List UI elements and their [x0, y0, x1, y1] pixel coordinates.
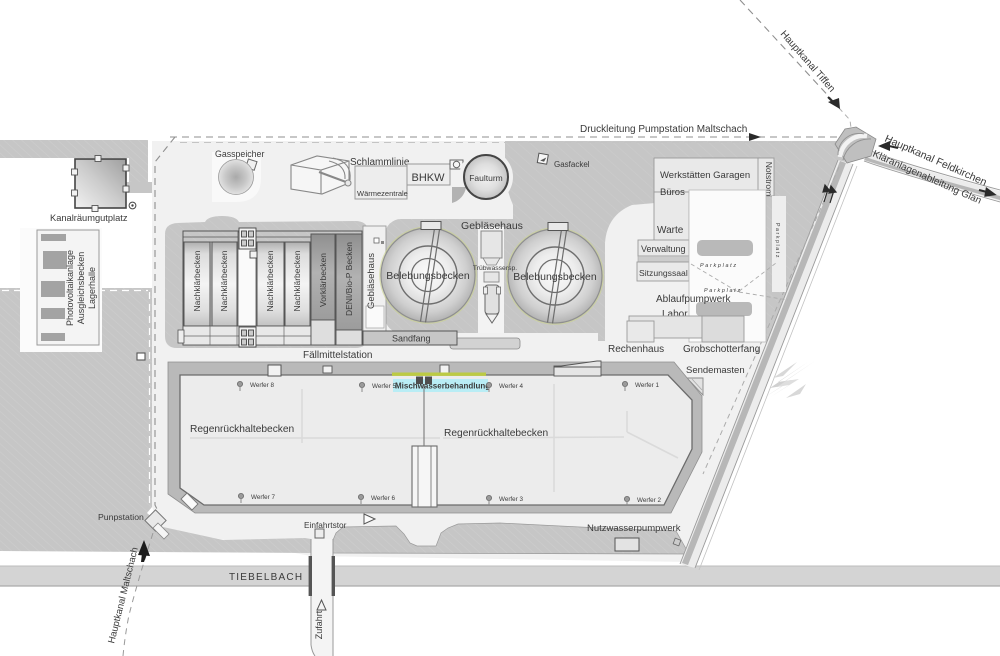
svg-text:Werfer 5: Werfer 5 [372, 383, 397, 390]
svg-text:Grobschotterfang: Grobschotterfang [683, 344, 760, 355]
svg-text:Nachklärbecken: Nachklärbecken [265, 250, 275, 311]
svg-text:Gebläsehaus: Gebläsehaus [461, 220, 523, 232]
svg-text:Gasspeicher: Gasspeicher [215, 149, 264, 159]
svg-text:Werfer 2: Werfer 2 [637, 497, 662, 504]
svg-text:Verwaltung: Verwaltung [641, 244, 686, 254]
svg-text:Wärmezentrale: Wärmezentrale [357, 189, 408, 198]
svg-text:Werfer 1: Werfer 1 [635, 382, 660, 389]
svg-text:TIEBELBACH: TIEBELBACH [229, 572, 303, 583]
svg-text:Photovoltaikanlage: Photovoltaikanlage [65, 250, 75, 326]
svg-text:Werfer 3: Werfer 3 [499, 496, 524, 503]
svg-text:Faulturm: Faulturm [469, 173, 503, 183]
svg-text:Nachklärbecken: Nachklärbecken [219, 250, 229, 311]
svg-text:Sendemasten: Sendemasten [686, 365, 745, 376]
svg-text:Zufahrt: Zufahrt [314, 610, 324, 639]
svg-text:Druckleitung Pumpstation Malts: Druckleitung Pumpstation Maltschach [580, 124, 747, 135]
svg-text:Vorklärbecken: Vorklärbecken [318, 253, 328, 307]
svg-text:BHKW: BHKW [412, 172, 446, 184]
svg-text:Werfer 8: Werfer 8 [250, 382, 275, 389]
svg-text:Ablaufpumpwerk: Ablaufpumpwerk [656, 294, 731, 305]
svg-text:Belebungsbecken: Belebungsbecken [386, 270, 470, 282]
svg-text:Sandfang: Sandfang [392, 334, 431, 344]
svg-text:Regenrückhaltebecken: Regenrückhaltebecken [190, 424, 294, 435]
svg-text:Warte: Warte [657, 225, 684, 236]
svg-text:Werfer 6: Werfer 6 [371, 495, 396, 502]
svg-text:Parkplatz: Parkplatz [700, 263, 738, 269]
svg-text:Gasfackel: Gasfackel [554, 160, 590, 169]
svg-text:Nachklärbecken: Nachklärbecken [292, 250, 302, 311]
svg-text:Punpstation: Punpstation [98, 512, 144, 522]
svg-text:Gebläsehaus: Gebläsehaus [366, 253, 377, 309]
svg-text:Werkstätten Garagen: Werkstätten Garagen [660, 170, 750, 181]
svg-text:Fällmittelstation: Fällmittelstation [303, 350, 372, 361]
svg-text:Sitzungssaal: Sitzungssaal [639, 268, 688, 278]
svg-text:Parkplatz: Parkplatz [774, 223, 780, 259]
svg-text:Werfer 4: Werfer 4 [499, 383, 524, 390]
svg-text:Büros: Büros [660, 187, 685, 198]
svg-text:Trübwassersp.: Trübwassersp. [473, 265, 517, 272]
svg-text:Nutzwasserpumpwerk: Nutzwasserpumpwerk [587, 523, 681, 534]
svg-text:Belebungsbecken: Belebungsbecken [513, 271, 597, 283]
svg-text:Regenrückhaltebecken: Regenrückhaltebecken [444, 428, 548, 439]
svg-text:Werfer 7: Werfer 7 [251, 494, 276, 501]
svg-text:Ausgleichsbecken: Ausgleichsbecken [76, 252, 86, 325]
svg-text:Rechenhaus: Rechenhaus [608, 344, 664, 355]
svg-text:Nachklärbecken: Nachklärbecken [192, 250, 202, 311]
svg-text:Einfahrtstor: Einfahrtstor [304, 520, 347, 530]
svg-text:Lagerhalle: Lagerhalle [87, 267, 97, 309]
svg-text:DENI/Bio-P Becken: DENI/Bio-P Becken [344, 242, 354, 316]
svg-text:Mischwasserbehandlung: Mischwasserbehandlung [395, 382, 490, 391]
svg-text:Kanalräumgutplatz: Kanalräumgutplatz [50, 213, 128, 223]
